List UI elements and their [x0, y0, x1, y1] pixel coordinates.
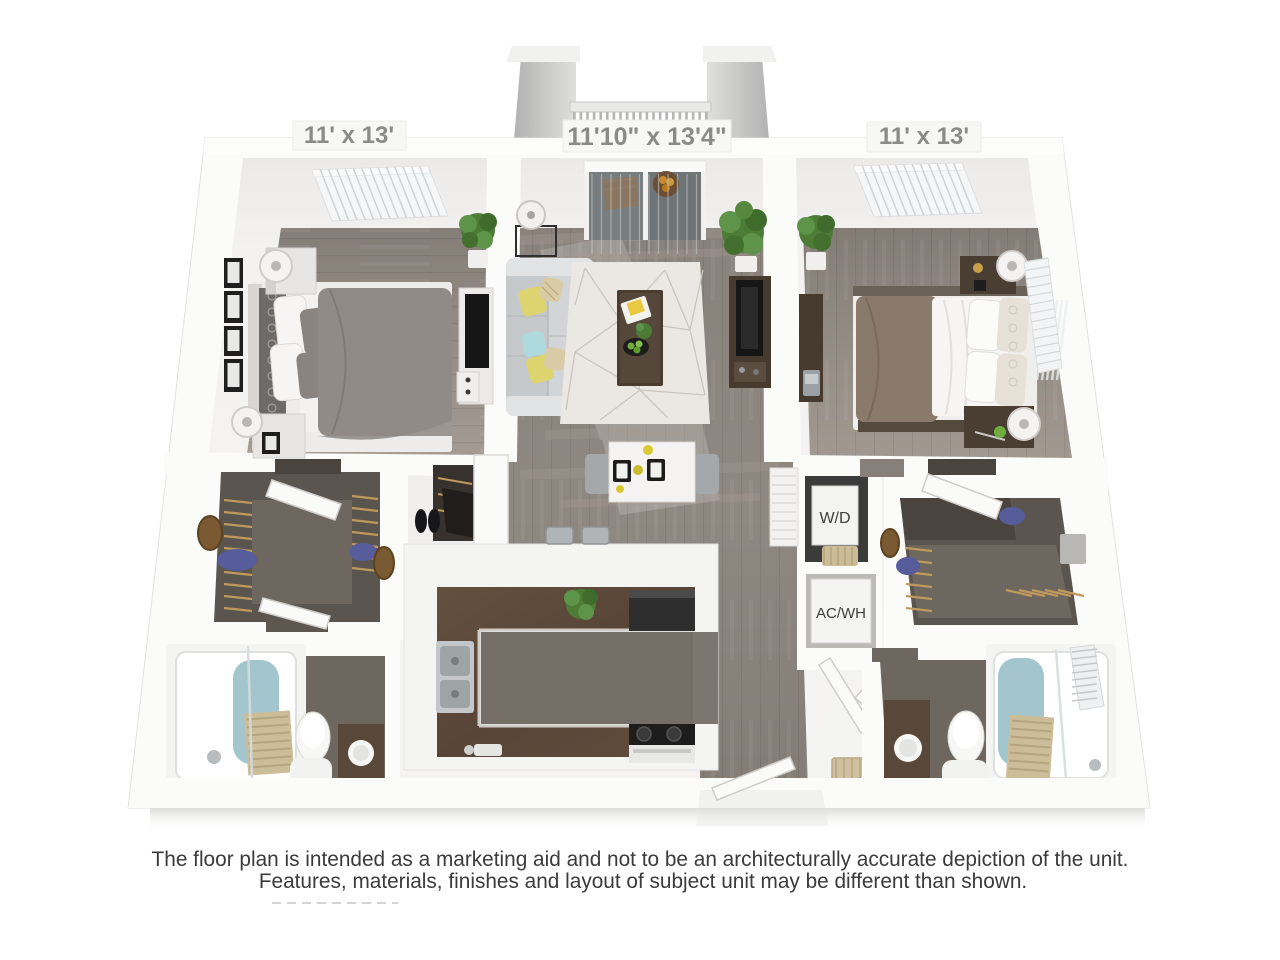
svg-text:W/D: W/D: [819, 510, 850, 527]
svg-text:Features, materials, finishes: Features, materials, finishes and layout…: [259, 870, 1027, 893]
svg-text:11'10" x 13'4": 11'10" x 13'4": [567, 123, 726, 151]
svg-text:AC/WH: AC/WH: [816, 605, 866, 622]
svg-text:11' x 13': 11' x 13': [879, 123, 969, 150]
svg-text:The floor plan is intended as: The floor plan is intended as a marketin…: [152, 848, 1129, 871]
svg-text:11' x 13': 11' x 13': [304, 122, 394, 149]
